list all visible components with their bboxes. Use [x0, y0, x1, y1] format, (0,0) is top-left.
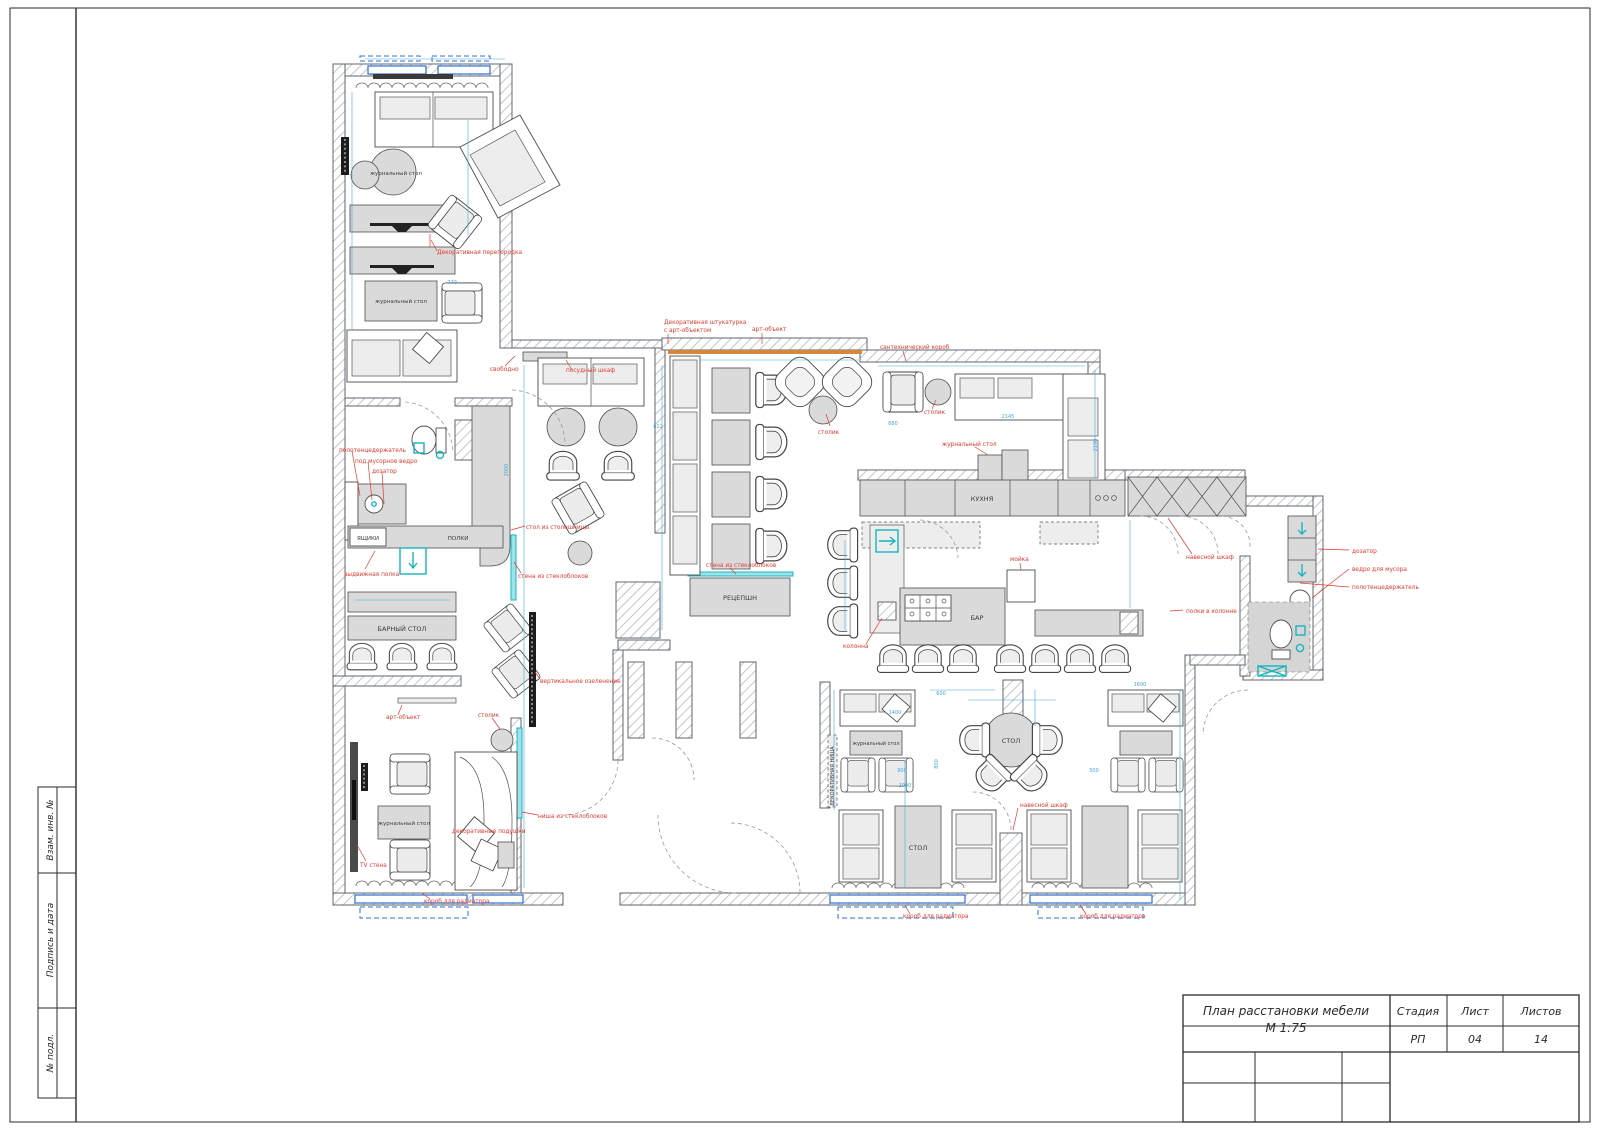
label-table: СТОЛ	[909, 844, 928, 852]
dim: 612	[653, 424, 663, 430]
note-glassblock-niche: ниша из стеклоблоков	[538, 814, 608, 820]
label-reception: РЕЦЕПШН	[723, 594, 757, 602]
label-coffee-table: журнальный стол	[375, 298, 427, 305]
note-pullout-shelf: выдвижная полка	[344, 572, 400, 578]
note-tv-wall: ТV стена	[359, 863, 387, 869]
floor-plan-drawing: Взам. инв. № Подпись и дата № подл. План…	[0, 0, 1600, 1130]
dim: 1600	[1134, 682, 1147, 688]
note-radiator-box: короб для радиатора	[903, 914, 969, 920]
note-dish-cabinet: посудный шкаф	[566, 367, 615, 374]
note-side-table: столик	[478, 713, 500, 719]
note-decor-plaster: Декоративная штукатурка	[664, 320, 747, 326]
note-trash-bin: ведро для мусора	[1352, 567, 1407, 573]
dining-table	[712, 368, 750, 413]
note-plumbing-box: сантехнический короб	[880, 344, 950, 351]
label-coffee-table: журнальный стол	[370, 170, 422, 177]
room-top-left-lounge	[341, 92, 560, 382]
label-kitchen: КУХНЯ	[971, 495, 993, 503]
sheets-value: 14	[1534, 1033, 1548, 1046]
stage-value: РП	[1411, 1033, 1426, 1046]
note-coffee-table: журнальный стол	[942, 441, 997, 448]
note-side-table: столик	[924, 410, 946, 416]
stamp-row-label: Подпись и дата	[46, 903, 56, 978]
kitchen-bar-zone	[828, 477, 1246, 672]
dim: 800	[934, 759, 940, 769]
note-sink: мойка	[1010, 556, 1029, 563]
sheet-header: Лист	[1460, 1005, 1489, 1018]
dim: 900	[897, 768, 907, 774]
note-partition: Декоративная перегородка	[437, 250, 523, 256]
note-side-table: столик	[818, 430, 840, 436]
art-object-shelf	[398, 698, 456, 703]
bar-stool	[877, 645, 908, 673]
label-drawers: ЯЩИКИ	[357, 536, 379, 542]
label-decorative-niche: ДЕКОРАТИВНАЯ НИША	[830, 746, 836, 806]
room-top-right-lounge	[883, 372, 1105, 486]
side-table	[809, 396, 837, 424]
label-coffee-table: журнальный стол	[378, 820, 430, 827]
label-bar-table: БАРНЫЙ СТОЛ	[378, 624, 427, 633]
coffee-table	[978, 455, 1002, 483]
armchair	[427, 194, 483, 250]
dim: 2190	[1093, 439, 1099, 452]
left-stamp: Взам. инв. № Подпись и дата № подл.	[38, 787, 76, 1098]
note-glassblock-wall: стена из стеклоблоков	[706, 563, 777, 569]
title-block: План расстановки мебели М 1:75 Стадия Ли…	[1183, 995, 1579, 1122]
note-vertical-garden: вертикальное озеленение	[540, 679, 621, 685]
note-free: свободно	[490, 367, 519, 373]
dim: 1000	[899, 783, 912, 789]
note-wall-cabinet: навесной шкаф	[1186, 554, 1234, 561]
note-towel-holder: полотенцедержатель	[339, 448, 407, 454]
note-dispenser: дозатор	[372, 469, 397, 475]
label-coffee-table: журнальный стол	[852, 740, 899, 747]
stamp-row-label: № подл.	[46, 1034, 56, 1073]
drawing-sheet: Взам. инв. № Подпись и дата № подл. План…	[0, 0, 1600, 1130]
note-countertop-table: стол из столешницы	[526, 525, 590, 531]
note-trash-bin: под мусорное ведро	[355, 459, 418, 465]
dim: 500	[1089, 768, 1099, 774]
note-decor-pillows: декоративные подушки	[452, 829, 526, 835]
bathroom-right	[1248, 516, 1316, 676]
note-radiator-box: короб для радиатора	[1080, 914, 1146, 920]
side-table	[491, 729, 513, 751]
note-glassblock-wall: стена из стеклоблоков	[518, 574, 589, 580]
entrance-mat	[373, 74, 453, 79]
note-art-object: арт-объект	[752, 327, 787, 333]
sheet-value: 04	[1468, 1033, 1482, 1046]
round-table	[547, 408, 585, 446]
toilet	[1270, 620, 1292, 648]
dim: 680	[888, 421, 898, 427]
room-bottom-left	[350, 698, 517, 890]
sheets-header: Листов	[1519, 1005, 1561, 1018]
note-wall-cabinet: навесной шкаф	[1020, 802, 1068, 809]
dim: 770	[447, 280, 457, 286]
bathroom-left	[345, 402, 510, 574]
banquette-wall-strip	[668, 350, 862, 354]
dim: 1400	[889, 710, 902, 716]
sink-box	[1007, 570, 1035, 602]
sheet-title: План расстановки мебели	[1203, 1004, 1369, 1018]
note-column-shelves: полки в колонне	[1186, 609, 1237, 615]
bar-stool	[347, 643, 377, 669]
sheet-frame: Взам. инв. № Подпись и дата № подл. План…	[10, 8, 1590, 1122]
label-shelves: ПОЛКИ	[448, 536, 469, 542]
wardrobe	[1128, 477, 1246, 516]
note-column: колонна	[843, 644, 869, 650]
label-table: СТОЛ	[1002, 737, 1021, 745]
note-radiator-box: короб для радиатора	[424, 899, 490, 905]
dim: 2000	[504, 464, 510, 477]
stamp-row-label: Взам. инв. №	[46, 799, 56, 860]
note-art-object: арт-объект	[386, 715, 421, 721]
label-bar: БАР	[971, 614, 984, 622]
daybed	[455, 752, 517, 890]
vertical-garden-strip	[341, 137, 349, 175]
note-dispenser: дозатор	[1352, 549, 1377, 555]
side-table	[925, 379, 951, 405]
sheet-scale: М 1:75	[1265, 1021, 1306, 1035]
dim: 600	[936, 691, 946, 697]
dim: 2145	[1002, 414, 1015, 420]
note-decor-plaster-2: с арт-объектом	[664, 328, 711, 334]
stage-header: Стадия	[1397, 1005, 1440, 1018]
note-towel-holder: полотенцедержатель	[1352, 585, 1420, 591]
